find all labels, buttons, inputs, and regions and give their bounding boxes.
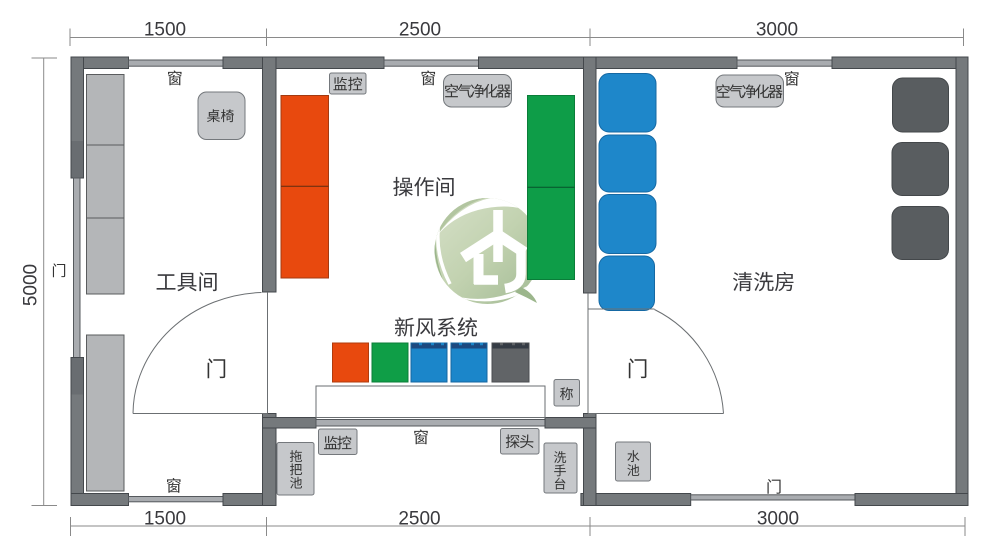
svg-text:1500: 1500 <box>144 509 186 530</box>
svg-text:2500: 2500 <box>399 20 441 41</box>
svg-text:3000: 3000 <box>756 20 798 41</box>
svg-text:1500: 1500 <box>144 20 186 41</box>
svg-text:3000: 3000 <box>757 509 799 530</box>
svg-text:5000: 5000 <box>21 264 42 306</box>
svg-text:2500: 2500 <box>398 509 440 530</box>
